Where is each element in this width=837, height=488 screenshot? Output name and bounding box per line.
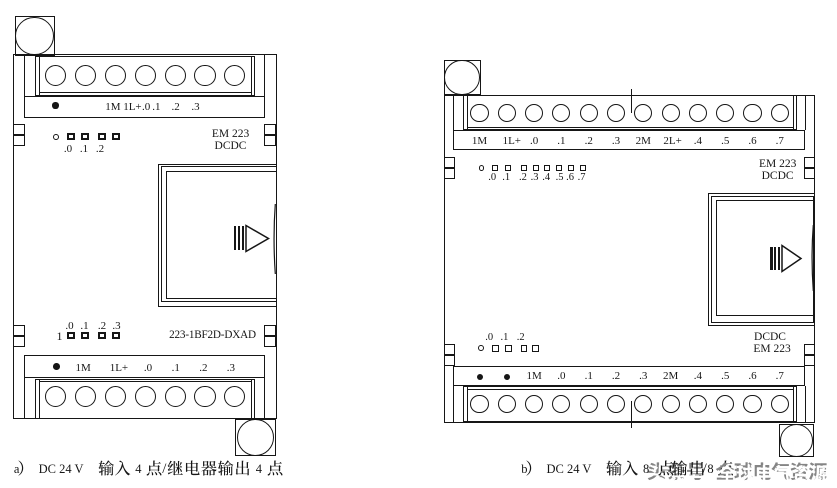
svg-text:/: / — [162, 461, 167, 477]
svg-text:DC 24 V: DC 24 V — [547, 462, 592, 476]
svg-text:a: a — [14, 462, 20, 476]
svg-text:4: 4 — [256, 462, 263, 476]
svg-text:8: 8 — [707, 462, 713, 476]
svg-text:8: 8 — [643, 462, 649, 476]
svg-text:DC 24 V: DC 24 V — [39, 462, 84, 476]
svg-text:b: b — [521, 462, 527, 476]
svg-text:4: 4 — [135, 462, 142, 476]
